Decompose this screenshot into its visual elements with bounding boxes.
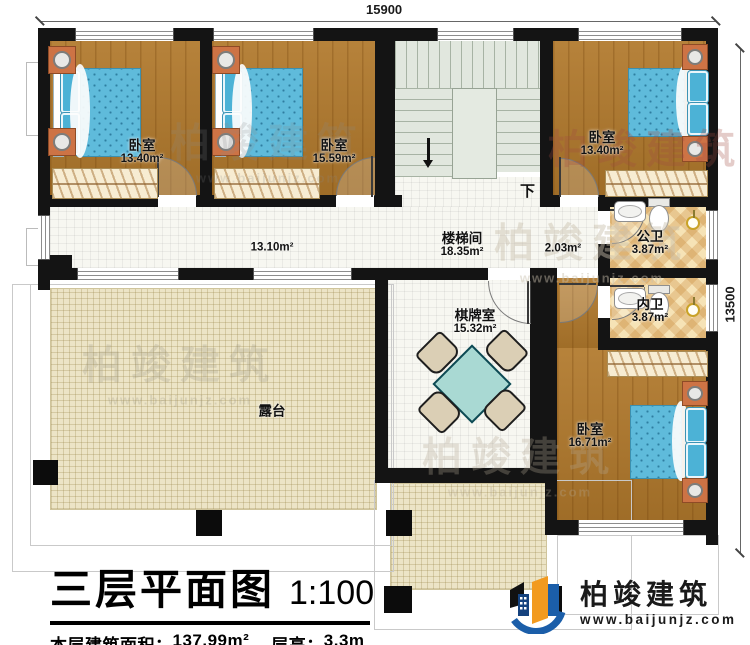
wall — [610, 268, 706, 278]
wall — [545, 268, 557, 535]
door-leaf — [527, 281, 529, 324]
floor-area-value: 137.99m² — [173, 631, 250, 645]
stair-right-flight — [495, 88, 540, 172]
nightstand — [48, 128, 76, 156]
wall-lamp-icon — [686, 216, 700, 230]
floor-height-label: 层高： — [271, 631, 324, 645]
floor-area-label: 本层建筑面积： — [50, 631, 173, 645]
wardrobe — [214, 168, 320, 199]
wall — [540, 195, 560, 207]
floor-plan-canvas: 柏竣建筑 www.baijunjz.com 柏竣建筑 柏竣建筑 www.baij… — [0, 0, 750, 645]
nightstand — [682, 381, 708, 406]
stair-upper-flight — [395, 40, 540, 90]
title-block: 三层平面图 1:100 本层建筑面积： 137.99m² 层高： 3.3m — [50, 556, 430, 645]
wall — [530, 280, 545, 468]
stair-arrow-head — [423, 160, 433, 168]
wall — [598, 195, 610, 211]
wall — [598, 244, 610, 286]
window — [706, 210, 718, 260]
window — [578, 520, 684, 535]
room-label-bedroom-br: 卧室 16.71m² — [569, 422, 612, 450]
wall — [374, 195, 402, 207]
door-leaf — [610, 285, 644, 287]
dimension-line — [740, 48, 741, 553]
room-label-terrace: 露台 — [259, 403, 286, 418]
column — [33, 460, 58, 485]
stair-landing — [452, 88, 497, 179]
drawing-scale: 1:100 — [289, 574, 374, 613]
wall — [375, 280, 388, 483]
column — [196, 510, 222, 536]
wall — [540, 40, 553, 200]
bed-pillow — [688, 103, 708, 135]
stair-direction-arrow — [427, 138, 430, 162]
floor-height-value: 3.3m — [324, 631, 365, 645]
room-label-public-bath: 公卫 3.87m² — [632, 229, 668, 257]
room-label-bedroom-tm: 卧室 15.59m² — [313, 138, 356, 166]
wardrobe — [605, 170, 708, 197]
wall — [598, 338, 706, 350]
wall — [350, 268, 488, 280]
room-label-bedroom-tl: 卧室 13.40m² — [121, 138, 164, 166]
wall — [177, 268, 253, 280]
wardrobe — [607, 351, 708, 377]
window — [75, 28, 174, 41]
bed-pillow — [686, 443, 706, 478]
door-leaf — [559, 283, 596, 285]
wardrobe — [52, 168, 158, 199]
room-label-stairwell: 楼梯间 18.35m² — [441, 231, 484, 259]
window — [253, 268, 352, 280]
door-leaf — [559, 157, 561, 197]
column — [386, 510, 412, 536]
room-label-bedroom-tr: 卧室 13.40m² — [581, 130, 624, 158]
page-title: 三层平面图 — [50, 556, 275, 617]
nightstand — [212, 128, 240, 156]
wall — [388, 468, 545, 483]
title-underline — [50, 621, 370, 625]
company-logo: 柏竣建筑 www.baijunjz.com — [508, 574, 737, 634]
wall-lamp-icon — [686, 303, 700, 317]
nightstand — [682, 478, 708, 503]
wall — [200, 40, 212, 200]
room-label-hall: 2.03m² — [545, 243, 581, 256]
dimension-line — [40, 21, 716, 22]
window — [437, 28, 514, 41]
room-label-inner-bath: 内卫 3.87m² — [632, 297, 668, 325]
logo-company-name: 柏竣建筑 — [580, 581, 737, 609]
window — [578, 28, 682, 41]
dimension-top: 15900 — [366, 2, 402, 17]
nightstand — [682, 136, 708, 162]
stair-down-label: 下 — [520, 180, 535, 201]
nightstand — [212, 46, 240, 74]
toilet — [649, 205, 669, 232]
window — [213, 28, 314, 41]
logo-website: www.baijunjz.com — [580, 612, 737, 627]
nightstand — [682, 44, 708, 70]
stair-lobby-floor — [395, 177, 540, 207]
bed-pillow — [688, 71, 708, 103]
window — [77, 268, 179, 280]
dimension-right: 13500 — [723, 286, 738, 322]
eave-line — [30, 284, 392, 546]
wall — [38, 268, 77, 280]
window — [706, 284, 718, 332]
wall — [375, 40, 395, 200]
corridor-floor — [50, 207, 598, 268]
room-label-game-room: 棋牌室 15.32m² — [454, 308, 497, 336]
nightstand — [48, 46, 76, 74]
logo-mark-icon — [508, 574, 570, 634]
room-label-corridor: 13.10m² — [251, 242, 294, 255]
door-leaf — [371, 156, 373, 197]
sink — [614, 201, 646, 222]
bed-pillow — [686, 408, 706, 443]
window — [38, 215, 50, 260]
